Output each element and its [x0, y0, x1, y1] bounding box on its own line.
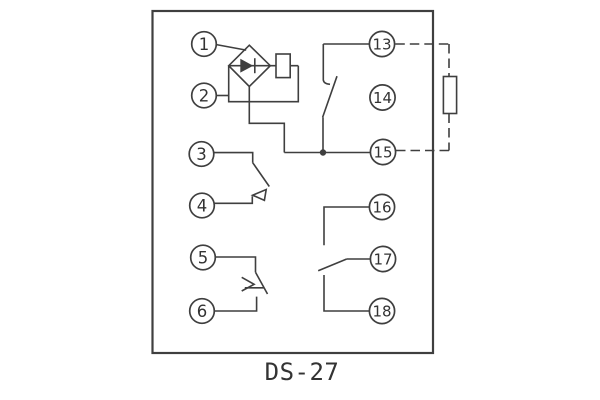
external-series-resistor — [443, 77, 456, 114]
terminal-18: 18 — [369, 298, 394, 323]
diagram-root: 1 2 3 4 5 — [153, 11, 457, 386]
terminal-3: 3 — [189, 142, 214, 167]
wire-bridge-to-bus — [249, 87, 284, 153]
contact-17-18-blade — [318, 259, 347, 271]
terminal-5-label: 5 — [198, 249, 209, 268]
terminal-17: 17 — [370, 246, 395, 271]
terminal-6: 6 — [190, 299, 215, 324]
wire-terminal4 — [214, 196, 252, 203]
contact-4-arrowhead-icon — [253, 190, 267, 201]
contact-3-4-blade — [253, 163, 270, 187]
terminal-6-label: 6 — [197, 302, 208, 321]
wire-terminal18 — [324, 275, 370, 311]
terminal-16: 16 — [369, 194, 394, 219]
terminal-5: 5 — [191, 245, 216, 270]
terminal-15-label: 15 — [373, 143, 392, 161]
terminal-13: 13 — [369, 31, 394, 56]
terminal-18-label: 18 — [372, 302, 391, 320]
model-label: DS-27 — [265, 358, 340, 386]
terminal-1: 1 — [192, 32, 217, 57]
terminal-14-label: 14 — [373, 89, 392, 107]
terminal-3-label: 3 — [196, 145, 207, 164]
terminal-17-label: 17 — [373, 250, 392, 268]
terminal-layer: 1 2 3 4 5 — [189, 31, 395, 323]
contact-5-6-blade — [256, 272, 268, 294]
wire-terminal6 — [214, 297, 256, 311]
relay-coil-resistor — [276, 54, 290, 78]
terminal-4: 4 — [190, 193, 215, 218]
wire-terminal16 — [324, 207, 370, 245]
terminal-4-label: 4 — [197, 197, 208, 216]
terminal-13-label: 13 — [372, 35, 391, 53]
wire-layer — [214, 44, 457, 311]
terminal-16-label: 16 — [372, 198, 391, 216]
wire-terminal5 — [215, 257, 255, 272]
wire-terminal1-bridge — [216, 45, 246, 51]
terminal-2: 2 — [192, 83, 217, 108]
wire-terminal3 — [214, 153, 253, 163]
terminal-2-label: 2 — [199, 87, 210, 106]
schematic-diagram: 1 2 3 4 5 — [0, 0, 600, 400]
contact-13-fixed — [323, 44, 330, 84]
diode-icon — [240, 59, 253, 73]
delay-hook-icon — [242, 277, 254, 291]
terminal-14: 14 — [370, 85, 395, 110]
junction-dot — [320, 149, 326, 155]
terminal-15: 15 — [370, 139, 395, 164]
external-dashed-circuit — [395, 44, 449, 151]
terminal-1-label: 1 — [199, 35, 210, 54]
